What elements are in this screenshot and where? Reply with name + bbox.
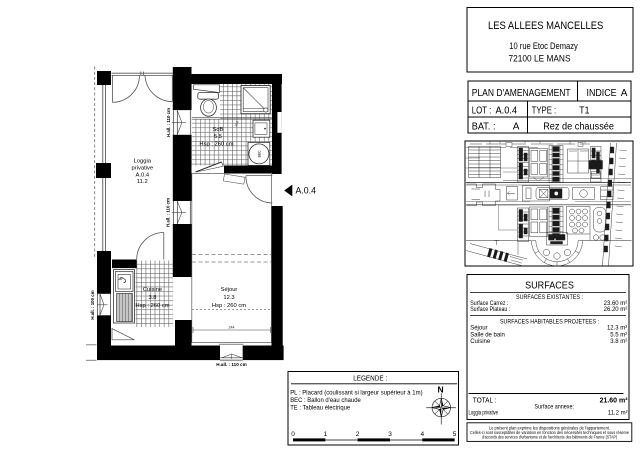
svg-text:A: A: [513, 122, 520, 133]
svg-text:10 rue Etoc Demazy: 10 rue Etoc Demazy: [509, 41, 578, 52]
svg-text:3: 3: [388, 431, 392, 438]
svg-text:LES ALLEES MANCELLES: LES ALLEES MANCELLES: [488, 20, 603, 32]
svg-text:INDICE: INDICE: [587, 88, 617, 99]
svg-text:Surface Plateau :: Surface Plateau :: [470, 307, 510, 313]
svg-text:Cuisine: Cuisine: [143, 287, 162, 293]
svg-text:TE : Tableau électrique: TE : Tableau électrique: [290, 405, 350, 412]
svg-text:0: 0: [291, 431, 295, 438]
svg-text:privative: privative: [132, 166, 154, 172]
svg-text:PLAN D'AMENAGEMENT: PLAN D'AMENAGEMENT: [472, 88, 571, 99]
svg-text:LEGENDE :: LEGENDE :: [353, 375, 387, 382]
svg-text:11.2 m²: 11.2 m²: [608, 410, 628, 416]
svg-text:Séjour: Séjour: [221, 287, 238, 293]
svg-text:5.5: 5.5: [214, 134, 222, 140]
svg-text:Salle de bain: Salle de bain: [470, 332, 505, 338]
svg-text:SURFACES HABITABLES PROJETEES: SURFACES HABITABLES PROJETEES :: [500, 319, 599, 325]
svg-text:11.2: 11.2: [137, 179, 148, 185]
svg-text:5: 5: [453, 431, 457, 438]
svg-text:H.all. : 110 cm: H.all. : 110 cm: [216, 362, 246, 367]
svg-text:A: A: [621, 88, 628, 99]
svg-text:5.5 m²: 5.5 m²: [610, 332, 627, 338]
svg-text:H.all. : 110 cm: H.all. : 110 cm: [166, 198, 171, 227]
svg-text:LOT :: LOT :: [472, 106, 492, 117]
svg-text:Cuisine: Cuisine: [470, 339, 491, 345]
svg-text:1: 1: [323, 431, 327, 438]
svg-text:2: 2: [356, 431, 360, 438]
svg-text:N: N: [438, 384, 444, 394]
svg-text:A.0.4: A.0.4: [496, 106, 518, 117]
svg-text:H.all. : 100 cm: H.all. : 100 cm: [90, 290, 95, 319]
svg-text:21.60 m²: 21.60 m²: [600, 397, 629, 404]
svg-text:T1: T1: [579, 106, 589, 117]
svg-text:PL : Placard (coulissant si la: PL : Placard (coulissant si largeur supé…: [290, 389, 422, 396]
svg-text:Surface annexe:: Surface annexe:: [535, 405, 575, 411]
svg-text:TYPE :: TYPE :: [532, 106, 557, 117]
svg-text:d'accords des services d'urban: d'accords des services d'urbanisme et de…: [482, 434, 617, 439]
svg-text:Séjour: Séjour: [470, 326, 487, 332]
svg-text:72100 LE MANS: 72100 LE MANS: [509, 53, 571, 64]
svg-text:Hsp : 260 cm: Hsp : 260 cm: [135, 303, 169, 309]
svg-text:BAT. :: BAT. :: [472, 122, 496, 133]
svg-text:Hsp : 260 cm: Hsp : 260 cm: [199, 142, 233, 148]
svg-text:Rez de chaussée: Rez de chaussée: [543, 122, 614, 133]
svg-text:A.0.4: A.0.4: [296, 186, 317, 196]
svg-text:TOTAL :: TOTAL :: [473, 397, 497, 404]
svg-text:26.20 m²: 26.20 m²: [604, 307, 628, 313]
svg-text:Loggia privative: Loggia privative: [469, 410, 499, 416]
svg-text:Loggia: Loggia: [134, 159, 152, 165]
svg-text:SURFACES EXISTANTES :: SURFACES EXISTANTES :: [516, 295, 583, 301]
svg-text:H.all. : 110 cm: H.all. : 110 cm: [166, 108, 171, 137]
svg-text:SURFACES: SURFACES: [525, 280, 574, 292]
svg-text:Hsp : 260 cm: Hsp : 260 cm: [212, 303, 246, 309]
svg-text:3.8 m²: 3.8 m²: [610, 339, 627, 345]
svg-text:4: 4: [420, 431, 424, 438]
svg-text:3.8: 3.8: [148, 295, 156, 301]
svg-text:244: 244: [229, 326, 235, 330]
svg-text:BEC: BEC: [257, 150, 261, 158]
svg-text:A.0.4: A.0.4: [136, 173, 150, 179]
svg-text:SdB: SdB: [213, 127, 224, 133]
svg-text:12.3 m²: 12.3 m²: [607, 326, 627, 332]
svg-text:BEC : Ballon d'eau chaude: BEC : Ballon d'eau chaude: [290, 397, 361, 404]
svg-text:12.3: 12.3: [223, 295, 234, 301]
